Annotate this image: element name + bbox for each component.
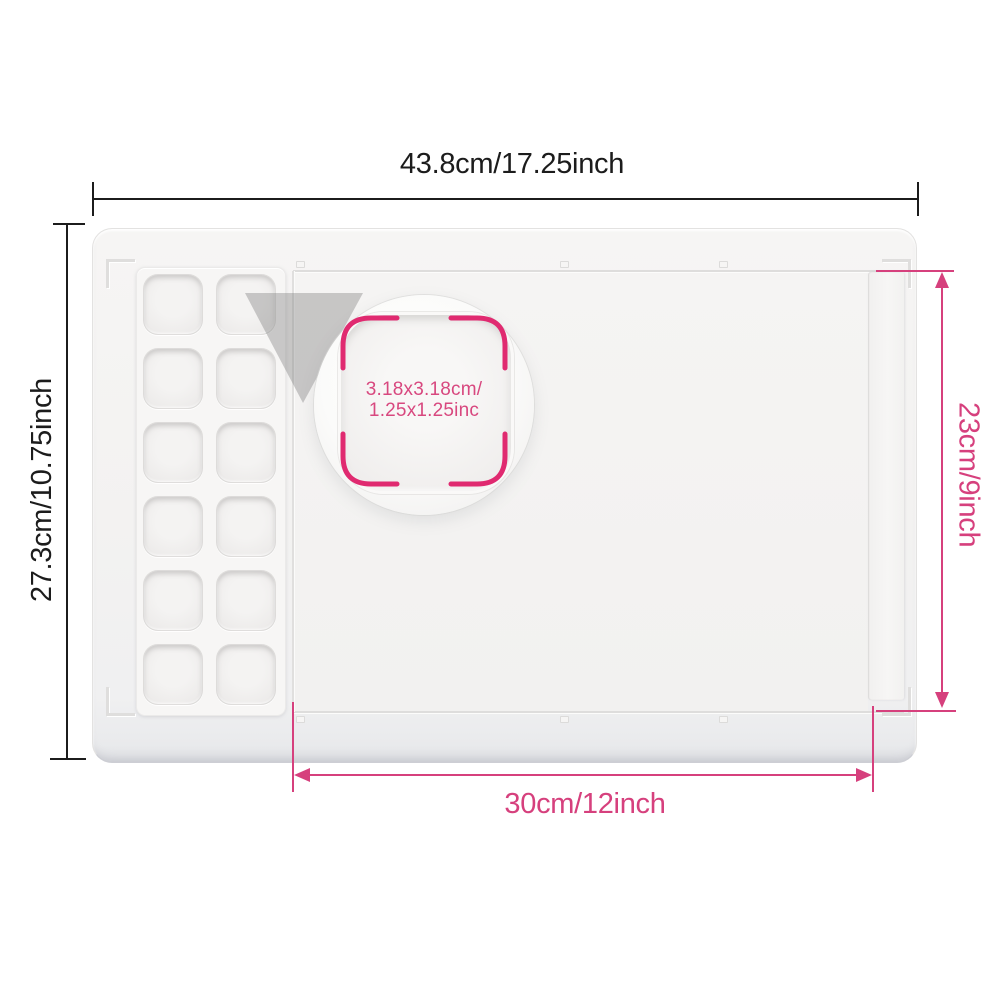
top-dimension-tick-right bbox=[917, 182, 919, 216]
top-dimension-line bbox=[93, 198, 919, 200]
mat-notch-mark bbox=[719, 261, 728, 268]
mat-notch-mark bbox=[560, 261, 569, 268]
right-dimension-tick-bottom bbox=[876, 710, 956, 712]
mat-right-rail bbox=[868, 272, 904, 700]
palette-well bbox=[216, 422, 276, 483]
palette-well bbox=[216, 644, 276, 705]
arrow-down-icon bbox=[935, 692, 949, 708]
palette-well bbox=[216, 496, 276, 557]
bottom-width-label: 30cm/12inch bbox=[385, 788, 785, 821]
top-dimension-tick-left bbox=[92, 182, 94, 216]
left-dimension-tick-top bbox=[53, 223, 85, 225]
right-dimension-line bbox=[941, 280, 943, 700]
palette-well bbox=[143, 570, 203, 631]
corner-registration-mark-icon bbox=[106, 259, 135, 288]
top-width-label: 43.8cm/17.25inch bbox=[312, 148, 712, 181]
mat-notch-mark bbox=[296, 716, 305, 723]
corner-registration-mark-icon bbox=[106, 687, 135, 716]
arrow-right-icon bbox=[856, 768, 872, 782]
left-dimension-line bbox=[66, 224, 68, 760]
mat-notch-mark bbox=[560, 716, 569, 723]
palette-well bbox=[216, 570, 276, 631]
palette-well bbox=[143, 348, 203, 409]
bottom-dimension-line bbox=[306, 774, 860, 776]
palette-well bbox=[143, 496, 203, 557]
well-size-line1: 3.18x3.18cm/ bbox=[314, 379, 534, 400]
mat-notch-mark bbox=[296, 261, 305, 268]
arrow-up-icon bbox=[935, 272, 949, 288]
palette-well bbox=[143, 274, 203, 335]
right-height-label: 23cm/9inch bbox=[944, 325, 992, 625]
left-dimension-tick-bottom bbox=[50, 758, 86, 760]
well-size-label: 3.18x3.18cm/ 1.25x1.25inc bbox=[314, 379, 534, 421]
bottom-dimension-extension-right bbox=[872, 706, 874, 792]
product-dimension-image: 3.18x3.18cm/ 1.25x1.25inc 43.8cm/17.25in… bbox=[0, 0, 1000, 1000]
mat-notch-mark bbox=[719, 716, 728, 723]
mat-bottom-groove bbox=[293, 711, 904, 713]
left-height-label: 27.3cm/10.75inch bbox=[18, 290, 66, 690]
well-size-line2: 1.25x1.25inc bbox=[314, 400, 534, 421]
arrow-left-icon bbox=[294, 768, 310, 782]
mat-top-groove bbox=[293, 270, 904, 272]
palette-well bbox=[143, 422, 203, 483]
palette-well bbox=[143, 644, 203, 705]
corner-registration-mark-icon bbox=[882, 259, 911, 288]
